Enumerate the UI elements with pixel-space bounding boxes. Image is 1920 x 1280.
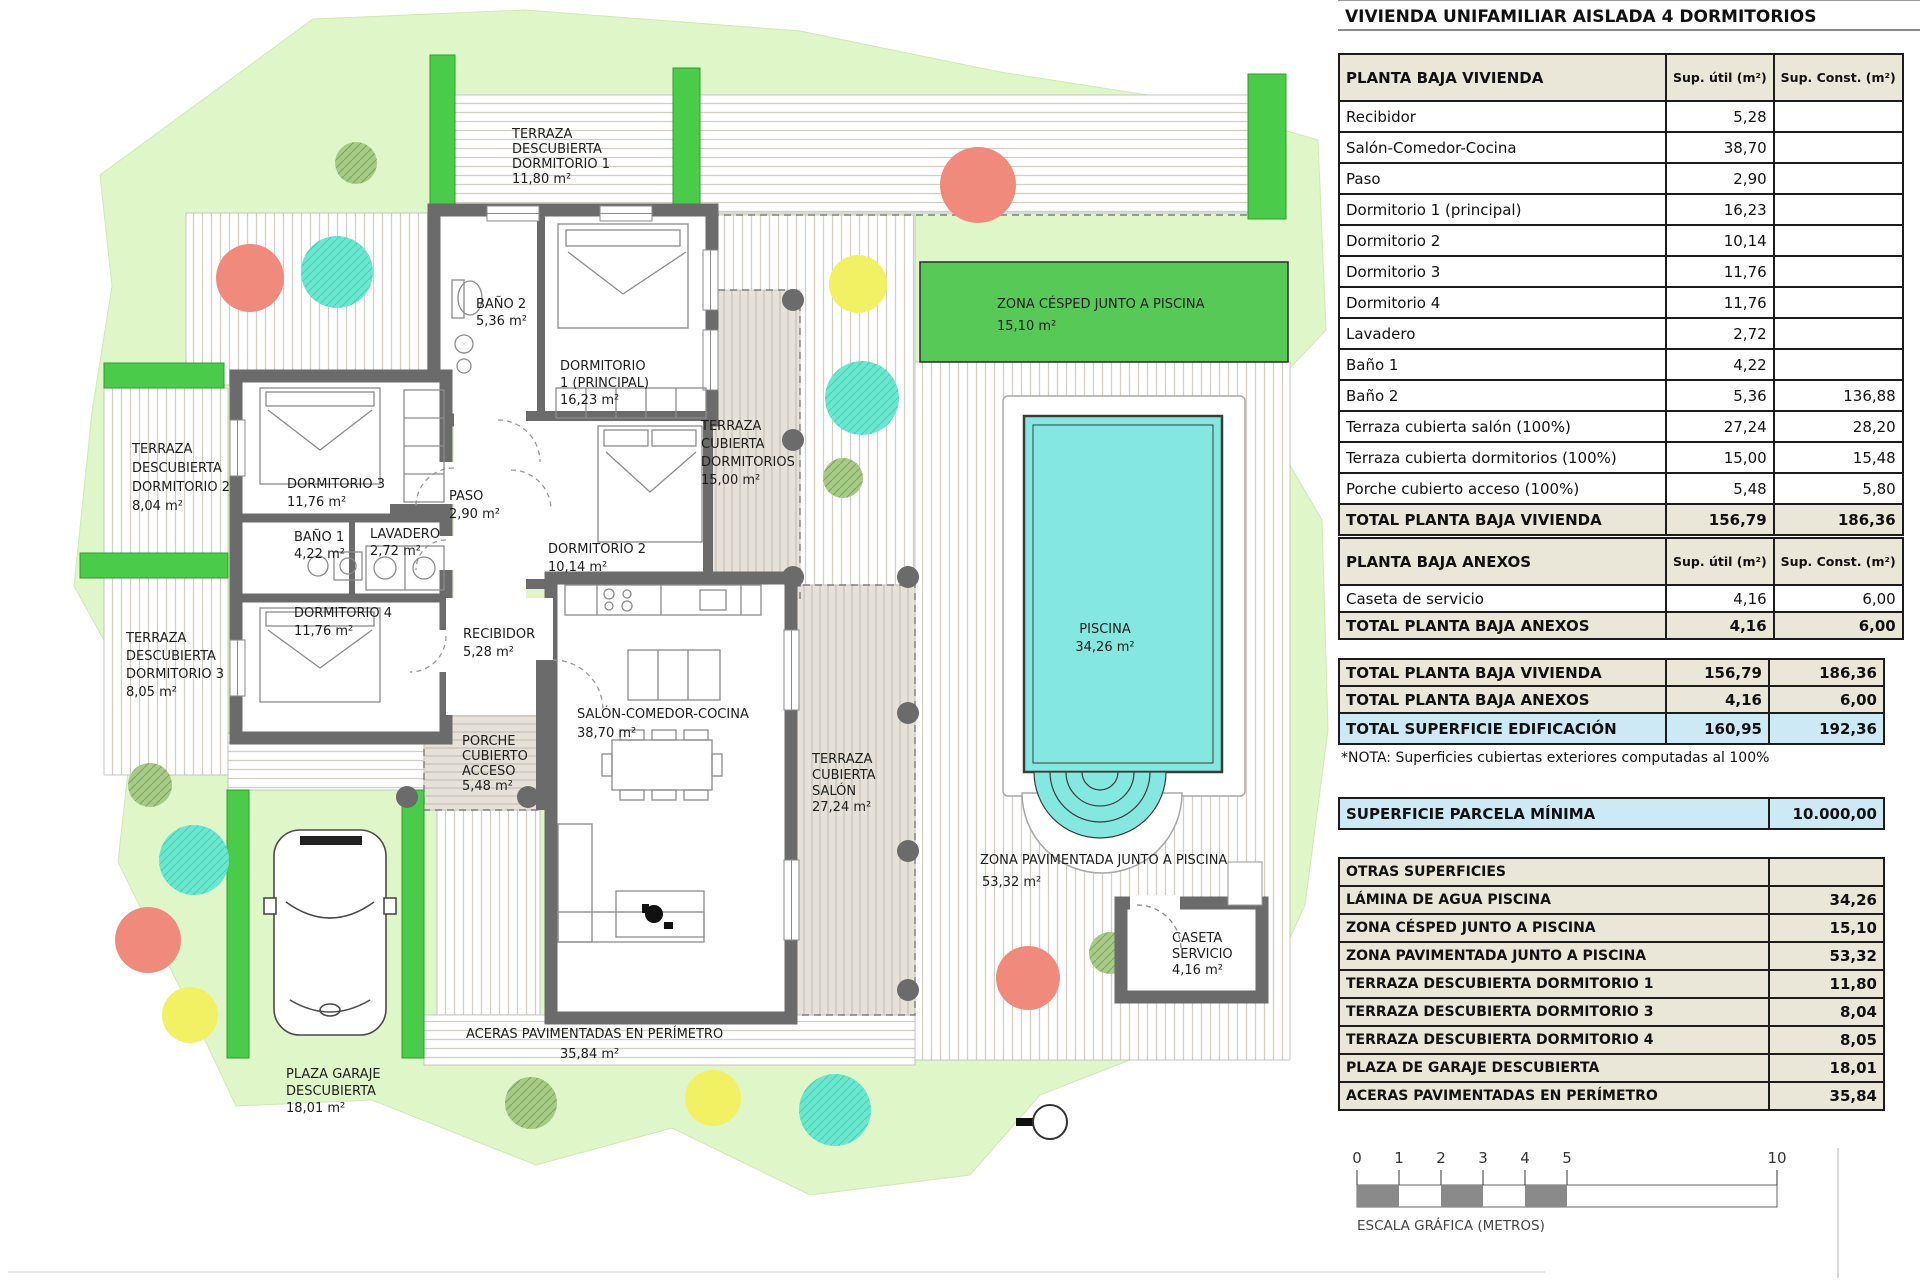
cell-util: 5,28 <box>1666 101 1774 132</box>
plan-label: 8,05 m² <box>126 685 177 700</box>
car <box>264 830 396 1035</box>
table-row: Dormitorio 210,14 <box>1339 225 1903 256</box>
tree-yellow <box>162 987 218 1043</box>
table-row: Terraza cubierta salón (100%)27,2428,20 <box>1339 411 1903 442</box>
scale-bar: 0 1 2 3 4 5 10 ESCALA GRÁFICA (METROS) <box>1352 1149 1786 1234</box>
cell-value: 8,04 <box>1769 998 1884 1026</box>
cell-label: ZONA PAVIMENTADA JUNTO A PISCINA <box>1339 942 1769 970</box>
plan-label: 15,10 m² <box>997 319 1056 334</box>
plan-label: TERRAZA <box>811 752 872 767</box>
plan-label: SERVICIO <box>1172 947 1233 962</box>
table-planta-baja-anexos: PLANTA BAJA ANEXOS Sup. útil (m²) Sup. C… <box>1338 537 1904 640</box>
plan-label: 4,16 m² <box>1172 963 1223 978</box>
cell-value: 15,10 <box>1769 914 1884 942</box>
cell-label: TOTAL PLANTA BAJA ANEXOS <box>1339 686 1666 713</box>
table-row: TERRAZA DESCUBIERTA DORMITORIO 38,04 <box>1339 998 1884 1026</box>
cell-const: 15,48 <box>1774 442 1903 473</box>
plan-label: 18,01 m² <box>286 1101 345 1116</box>
cell-util: 4,16 <box>1666 686 1769 713</box>
cell-label: Baño 1 <box>1339 349 1666 380</box>
lawn-zone <box>920 262 1288 362</box>
cell-util: 10,14 <box>1666 225 1774 256</box>
table-row: Baño 25,36136,88 <box>1339 380 1903 411</box>
plan-label: 2,72 m² <box>370 544 421 559</box>
cell-label: TERRAZA DESCUBIERTA DORMITORIO 4 <box>1339 1026 1769 1054</box>
plan-label: PORCHE <box>462 734 516 749</box>
plan-label: ACERAS PAVIMENTADAS EN PERÍMETRO <box>466 1026 723 1042</box>
scale-tick: 1 <box>1394 1149 1404 1167</box>
scale-caption: ESCALA GRÁFICA (METROS) <box>1357 1217 1545 1234</box>
cell-label: Dormitorio 3 <box>1339 256 1666 287</box>
plan-label: PASO <box>449 489 483 504</box>
plan-label: TERRAZA <box>700 419 761 434</box>
cell-util: 2,72 <box>1666 318 1774 349</box>
cell-util: 156,79 <box>1666 504 1774 535</box>
plan-label: CUBIERTO <box>462 749 528 764</box>
table-row: TERRAZA DESCUBIERTA DORMITORIO 111,80 <box>1339 970 1884 998</box>
floor-plan-sheet: TERRAZA DESCUBIERTA DORMITORIO 1 11,80 m… <box>0 0 1920 1280</box>
table-row: Salón-Comedor-Cocina38,70 <box>1339 132 1903 163</box>
cell-label: Dormitorio 4 <box>1339 287 1666 318</box>
plan-label: DESCUBIERTA <box>132 461 222 476</box>
cell-const <box>1774 225 1903 256</box>
plan-label: DORMITORIO 1 <box>512 157 610 172</box>
cell-label: Salón-Comedor-Cocina <box>1339 132 1666 163</box>
tree-teal <box>159 825 229 895</box>
plan-label: DORMITORIO 2 <box>548 542 646 557</box>
cell-label: PLANTA BAJA ANEXOS <box>1339 538 1666 585</box>
cell-const: 136,88 <box>1774 380 1903 411</box>
table-parcela: SUPERFICIE PARCELA MÍNIMA 10.000,00 <box>1338 797 1885 830</box>
table-planta-baja-vivienda: PLANTA BAJA VIVIENDA Sup. útil (m²) Sup.… <box>1338 53 1904 536</box>
tree-olive <box>335 142 377 184</box>
plan-label: 1 (PRINCIPAL) <box>560 376 649 391</box>
cell-const-header: Sup. Const. (m²) <box>1774 538 1903 585</box>
table-total-row: TOTAL PLANTA BAJA VIVIENDA 156,79 186,36 <box>1339 504 1903 535</box>
cell-value: 53,32 <box>1769 942 1884 970</box>
table-row: Lavadero2,72 <box>1339 318 1903 349</box>
cell-const <box>1774 101 1903 132</box>
table-header-row: PLANTA BAJA VIVIENDA Sup. útil (m²) Sup.… <box>1339 54 1903 101</box>
plan-label: 15,00 m² <box>701 473 760 488</box>
cell-label: ACERAS PAVIMENTADAS EN PERÍMETRO <box>1339 1082 1769 1110</box>
cell-label: LÁMINA DE AGUA PISCINA <box>1339 886 1769 914</box>
cell-label: Terraza cubierta salón (100%) <box>1339 411 1666 442</box>
table-row: Baño 14,22 <box>1339 349 1903 380</box>
plan-label: CUBIERTA <box>701 437 765 452</box>
tree-yellow <box>829 255 887 313</box>
cell-util: 11,76 <box>1666 256 1774 287</box>
cell-const <box>1774 194 1903 225</box>
cell-label: PLAZA DE GARAJE DESCUBIERTA <box>1339 1054 1769 1082</box>
plan-label: DORMITORIO 3 <box>287 477 385 492</box>
tree-olive <box>505 1077 557 1129</box>
cell-label: Dormitorio 2 <box>1339 225 1666 256</box>
cell-const <box>1774 132 1903 163</box>
plan-label: 35,84 m² <box>560 1047 619 1062</box>
table-row: Paso2,90 <box>1339 163 1903 194</box>
scale-tick: 10 <box>1767 1149 1786 1167</box>
cell-util-header: Sup. útil (m²) <box>1666 538 1774 585</box>
table-row: LÁMINA DE AGUA PISCINA34,26 <box>1339 886 1884 914</box>
cell-util: 160,95 <box>1666 713 1769 744</box>
plan-label: PISCINA <box>1079 622 1131 637</box>
plan-label: 38,70 m² <box>577 726 636 741</box>
plan-label: 53,32 m² <box>982 875 1041 890</box>
cell-util: 11,76 <box>1666 287 1774 318</box>
cell-label: TOTAL PLANTA BAJA VIVIENDA <box>1339 504 1666 535</box>
plan-label: DESCUBIERTA <box>512 142 602 157</box>
plan-label: CASETA <box>1172 931 1222 946</box>
plan-label: 5,48 m² <box>462 779 513 794</box>
cell-label: Dormitorio 1 (principal) <box>1339 194 1666 225</box>
cell-const <box>1774 318 1903 349</box>
cell-label: TERRAZA DESCUBIERTA DORMITORIO 1 <box>1339 970 1769 998</box>
table-row: ZONA CÉSPED JUNTO A PISCINA15,10 <box>1339 914 1884 942</box>
scale-tick: 2 <box>1436 1149 1446 1167</box>
cell-const <box>1774 256 1903 287</box>
tree-olive <box>128 763 172 807</box>
cell-util: 4,16 <box>1666 585 1774 612</box>
plan-label: 11,76 m² <box>287 495 346 510</box>
plan-label: PLAZA GARAJE <box>286 1067 381 1082</box>
table-row: TOTAL PLANTA BAJA ANEXOS 4,16 6,00 <box>1339 686 1884 713</box>
plan-label: SALÓN <box>812 783 856 799</box>
cell-const: 192,36 <box>1769 713 1884 744</box>
cell-util: 4,16 <box>1666 612 1774 639</box>
plan-label: 10,14 m² <box>548 560 607 575</box>
cell-const: 5,80 <box>1774 473 1903 504</box>
cell-util: 15,00 <box>1666 442 1774 473</box>
plan-label: TERRAZA <box>125 631 186 646</box>
cell-const: 6,00 <box>1774 612 1903 639</box>
cell-util: 27,24 <box>1666 411 1774 442</box>
cell-util: 38,70 <box>1666 132 1774 163</box>
plan-label: 8,04 m² <box>132 499 183 514</box>
cell-const <box>1774 287 1903 318</box>
cell-label: ZONA CÉSPED JUNTO A PISCINA <box>1339 914 1769 942</box>
cell-const: 6,00 <box>1769 686 1884 713</box>
table-header-row: OTRAS SUPERFICIES <box>1339 858 1884 886</box>
cell-const <box>1774 163 1903 194</box>
tree-yellow <box>685 1070 741 1126</box>
cell-value: 34,26 <box>1769 886 1884 914</box>
plan-label: RECIBIDOR <box>463 627 535 642</box>
table-row: Recibidor5,28 <box>1339 101 1903 132</box>
table-row: TERRAZA DESCUBIERTA DORMITORIO 48,05 <box>1339 1026 1884 1054</box>
plan-label: CUBIERTA <box>812 768 876 783</box>
cell-label: Baño 2 <box>1339 380 1666 411</box>
table-row: Dormitorio 311,76 <box>1339 256 1903 287</box>
table-row: Porche cubierto acceso (100%)5,485,80 <box>1339 473 1903 504</box>
cell-const: 28,20 <box>1774 411 1903 442</box>
cell-label: OTRAS SUPERFICIES <box>1339 858 1769 886</box>
plan-label: DESCUBIERTA <box>286 1084 376 1099</box>
plan-label: DESCUBIERTA <box>126 649 216 664</box>
plan-label: BAÑO 1 <box>294 529 344 545</box>
plan-label: 11,76 m² <box>294 624 353 639</box>
cell-value: 10.000,00 <box>1769 798 1884 829</box>
cell-label: Paso <box>1339 163 1666 194</box>
plan-label: 5,36 m² <box>476 314 527 329</box>
tree-teal <box>799 1074 871 1146</box>
cell-util-header: Sup. útil (m²) <box>1666 54 1774 101</box>
table-row: ACERAS PAVIMENTADAS EN PERÍMETRO35,84 <box>1339 1082 1884 1110</box>
cell-util: 156,79 <box>1666 659 1769 686</box>
page-title: VIVIENDA UNIFAMILIAR AISLADA 4 DORMITORI… <box>1338 0 1920 31</box>
cell-const: 186,36 <box>1769 659 1884 686</box>
scale-tick: 5 <box>1562 1149 1572 1167</box>
cell-label: Porche cubierto acceso (100%) <box>1339 473 1666 504</box>
table-row: Dormitorio 411,76 <box>1339 287 1903 318</box>
plan-label: SALÓN-COMEDOR-COCINA <box>577 706 749 722</box>
tree-salmon <box>115 907 181 973</box>
scale-tick: 0 <box>1352 1149 1362 1167</box>
note-text: *NOTA: Superficies cubiertas exteriores … <box>1341 750 1769 766</box>
table-summary: TOTAL PLANTA BAJA VIVIENDA 156,79 186,36… <box>1338 658 1885 745</box>
plan-label: TERRAZA <box>131 442 192 457</box>
cell-value: 35,84 <box>1769 1082 1884 1110</box>
cell-util: 4,22 <box>1666 349 1774 380</box>
plan-label: ZONA CÉSPED JUNTO A PISCINA <box>997 296 1205 312</box>
cell-value: 8,05 <box>1769 1026 1884 1054</box>
plan-label: DORMITORIO 3 <box>126 667 224 682</box>
cell-label: PLANTA BAJA VIVIENDA <box>1339 54 1666 101</box>
tree-teal <box>825 361 899 435</box>
cell-value: 11,80 <box>1769 970 1884 998</box>
cell-value <box>1769 858 1884 886</box>
plan-label: LAVADERO <box>370 527 440 542</box>
table-total-row: TOTAL SUPERFICIE EDIFICACIÓN 160,95 192,… <box>1339 713 1884 744</box>
tree-olive <box>823 458 863 498</box>
plan-label: 34,26 m² <box>1075 640 1134 655</box>
tree-salmon <box>940 147 1016 223</box>
cell-label: Terraza cubierta dormitorios (100%) <box>1339 442 1666 473</box>
pool-water <box>1024 416 1222 772</box>
plan-label: 16,23 m² <box>560 393 619 408</box>
plan-label: DORMITORIO 4 <box>294 606 392 621</box>
plan-label: DORMITORIO 2 <box>132 480 230 495</box>
table-total-row: TOTAL PLANTA BAJA ANEXOS 4,16 6,00 <box>1339 612 1903 639</box>
cell-const: 186,36 <box>1774 504 1903 535</box>
scale-tick: 4 <box>1520 1149 1530 1167</box>
cell-util: 5,48 <box>1666 473 1774 504</box>
cell-label: TERRAZA DESCUBIERTA DORMITORIO 3 <box>1339 998 1769 1026</box>
table-row: SUPERFICIE PARCELA MÍNIMA 10.000,00 <box>1339 798 1884 829</box>
table-row: ZONA PAVIMENTADA JUNTO A PISCINA53,32 <box>1339 942 1884 970</box>
cell-label: TOTAL SUPERFICIE EDIFICACIÓN <box>1339 713 1666 744</box>
plan-label: 5,28 m² <box>463 645 514 660</box>
cell-const: 6,00 <box>1774 585 1903 612</box>
cell-util: 5,36 <box>1666 380 1774 411</box>
cell-util: 16,23 <box>1666 194 1774 225</box>
plan-label: DORMITORIOS <box>701 455 795 470</box>
table-row: Dormitorio 1 (principal)16,23 <box>1339 194 1903 225</box>
tree-salmon <box>216 244 284 312</box>
cell-label: Recibidor <box>1339 101 1666 132</box>
plan-label: BAÑO 2 <box>476 296 526 312</box>
cell-label: TOTAL PLANTA BAJA ANEXOS <box>1339 612 1666 639</box>
table-row: Terraza cubierta dormitorios (100%)15,00… <box>1339 442 1903 473</box>
plan-label: ACCESO <box>462 764 516 779</box>
table-header-row: PLANTA BAJA ANEXOS Sup. útil (m²) Sup. C… <box>1339 538 1903 585</box>
tree-teal <box>301 236 373 308</box>
scale-tick: 3 <box>1478 1149 1488 1167</box>
cell-label: Lavadero <box>1339 318 1666 349</box>
plan-label: ZONA PAVIMENTADA JUNTO A PISCINA <box>980 853 1227 868</box>
plan-label: 2,90 m² <box>449 507 500 522</box>
plan-label: 11,80 m² <box>512 172 571 187</box>
table-row: Caseta de servicio 4,16 6,00 <box>1339 585 1903 612</box>
cell-value: 18,01 <box>1769 1054 1884 1082</box>
plan-label: 4,22 m² <box>294 547 345 562</box>
cell-label: TOTAL PLANTA BAJA VIVIENDA <box>1339 659 1666 686</box>
cell-const-header: Sup. Const. (m²) <box>1774 54 1903 101</box>
table-row: PLAZA DE GARAJE DESCUBIERTA18,01 <box>1339 1054 1884 1082</box>
tree-salmon <box>996 946 1060 1010</box>
table-otras-superficies: OTRAS SUPERFICIES LÁMINA DE AGUA PISCINA… <box>1338 857 1885 1111</box>
cell-util: 2,90 <box>1666 163 1774 194</box>
cell-label: SUPERFICIE PARCELA MÍNIMA <box>1339 798 1769 829</box>
plan-label: DORMITORIO <box>560 359 646 374</box>
plan-label: 27,24 m² <box>812 800 871 815</box>
cell-label: Caseta de servicio <box>1339 585 1666 612</box>
table-row: TOTAL PLANTA BAJA VIVIENDA 156,79 186,36 <box>1339 659 1884 686</box>
plan-label: TERRAZA <box>511 127 572 142</box>
cell-const <box>1774 349 1903 380</box>
